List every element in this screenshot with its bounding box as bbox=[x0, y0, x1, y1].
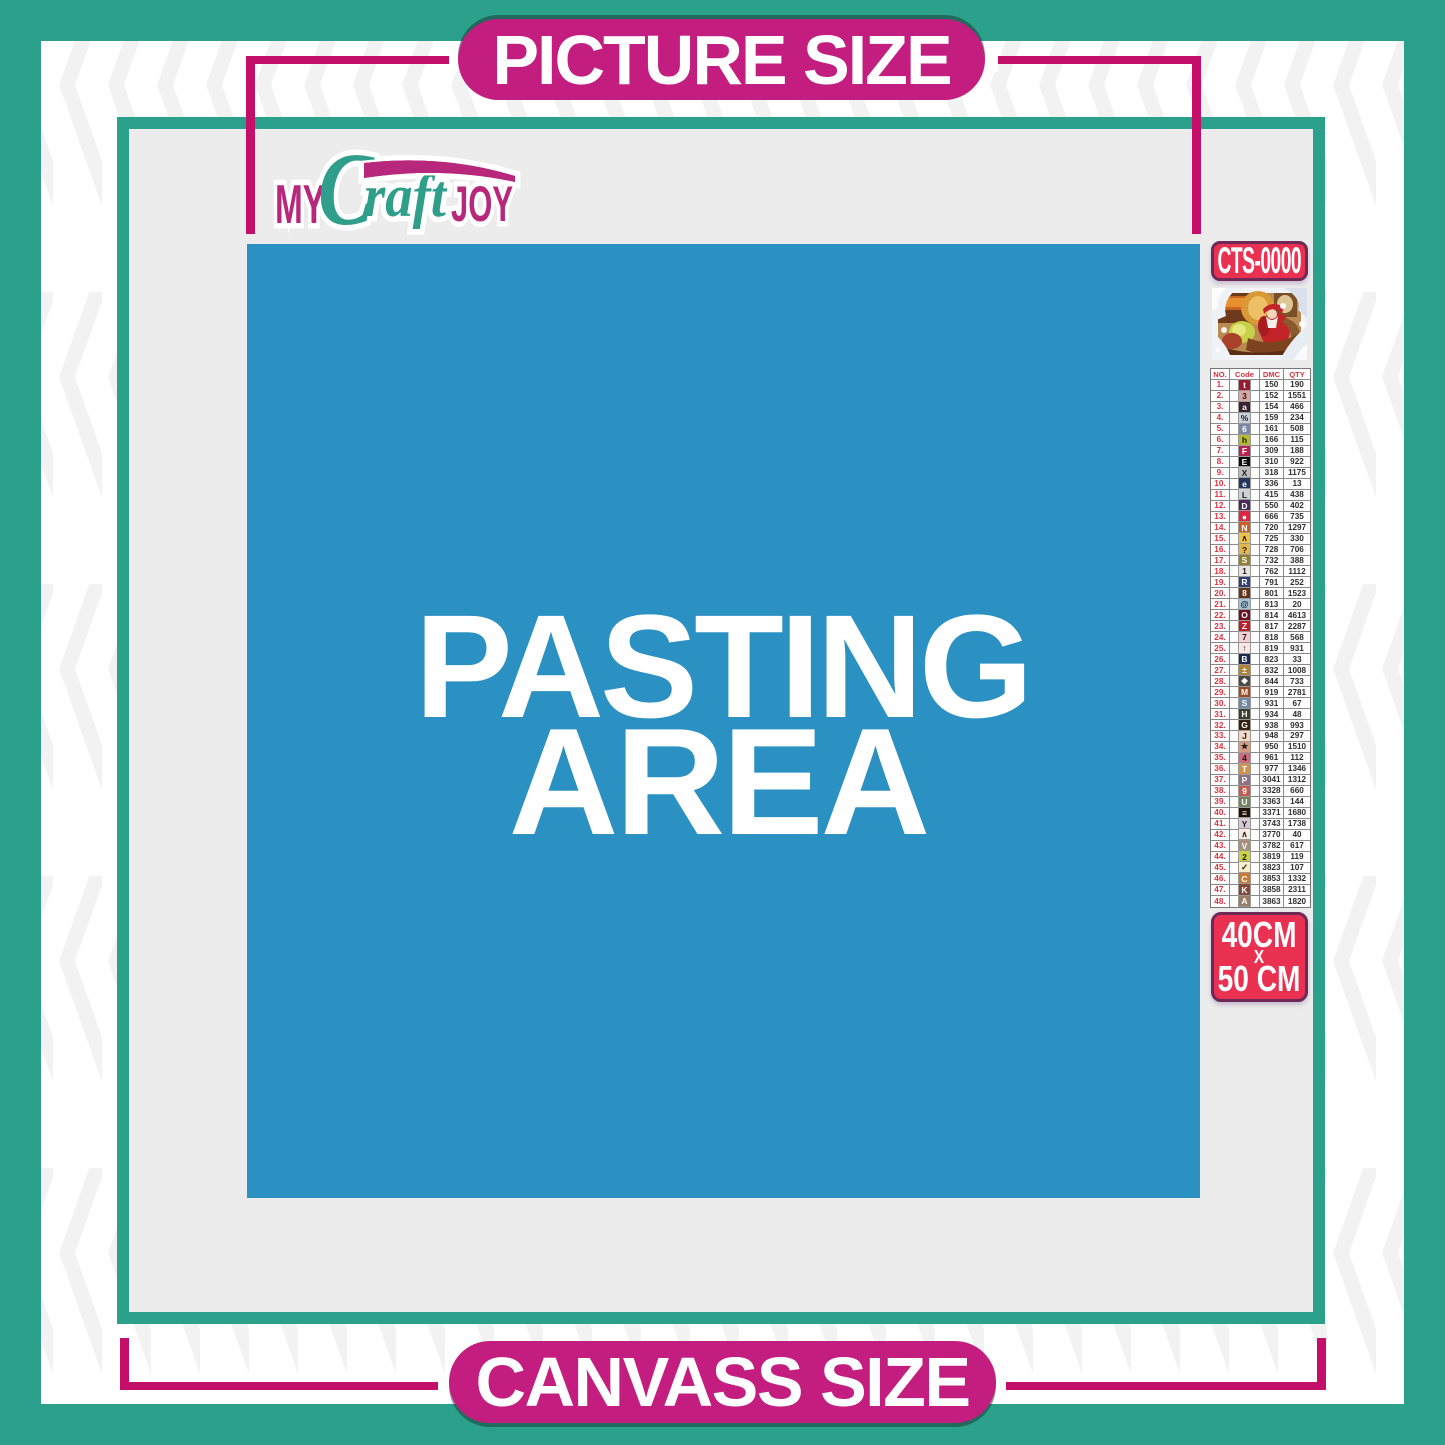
svg-text:JOY: JOY bbox=[451, 176, 513, 232]
